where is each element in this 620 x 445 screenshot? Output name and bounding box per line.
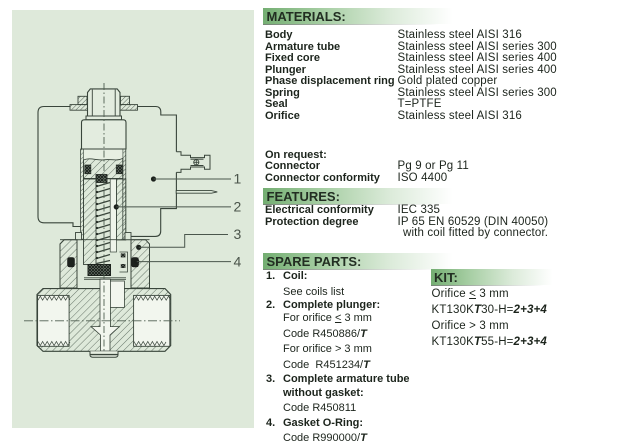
svg-text:2: 2 [234, 199, 242, 215]
svg-text:3: 3 [234, 226, 242, 242]
svg-text:4: 4 [234, 254, 242, 270]
svg-text:1: 1 [234, 171, 242, 187]
